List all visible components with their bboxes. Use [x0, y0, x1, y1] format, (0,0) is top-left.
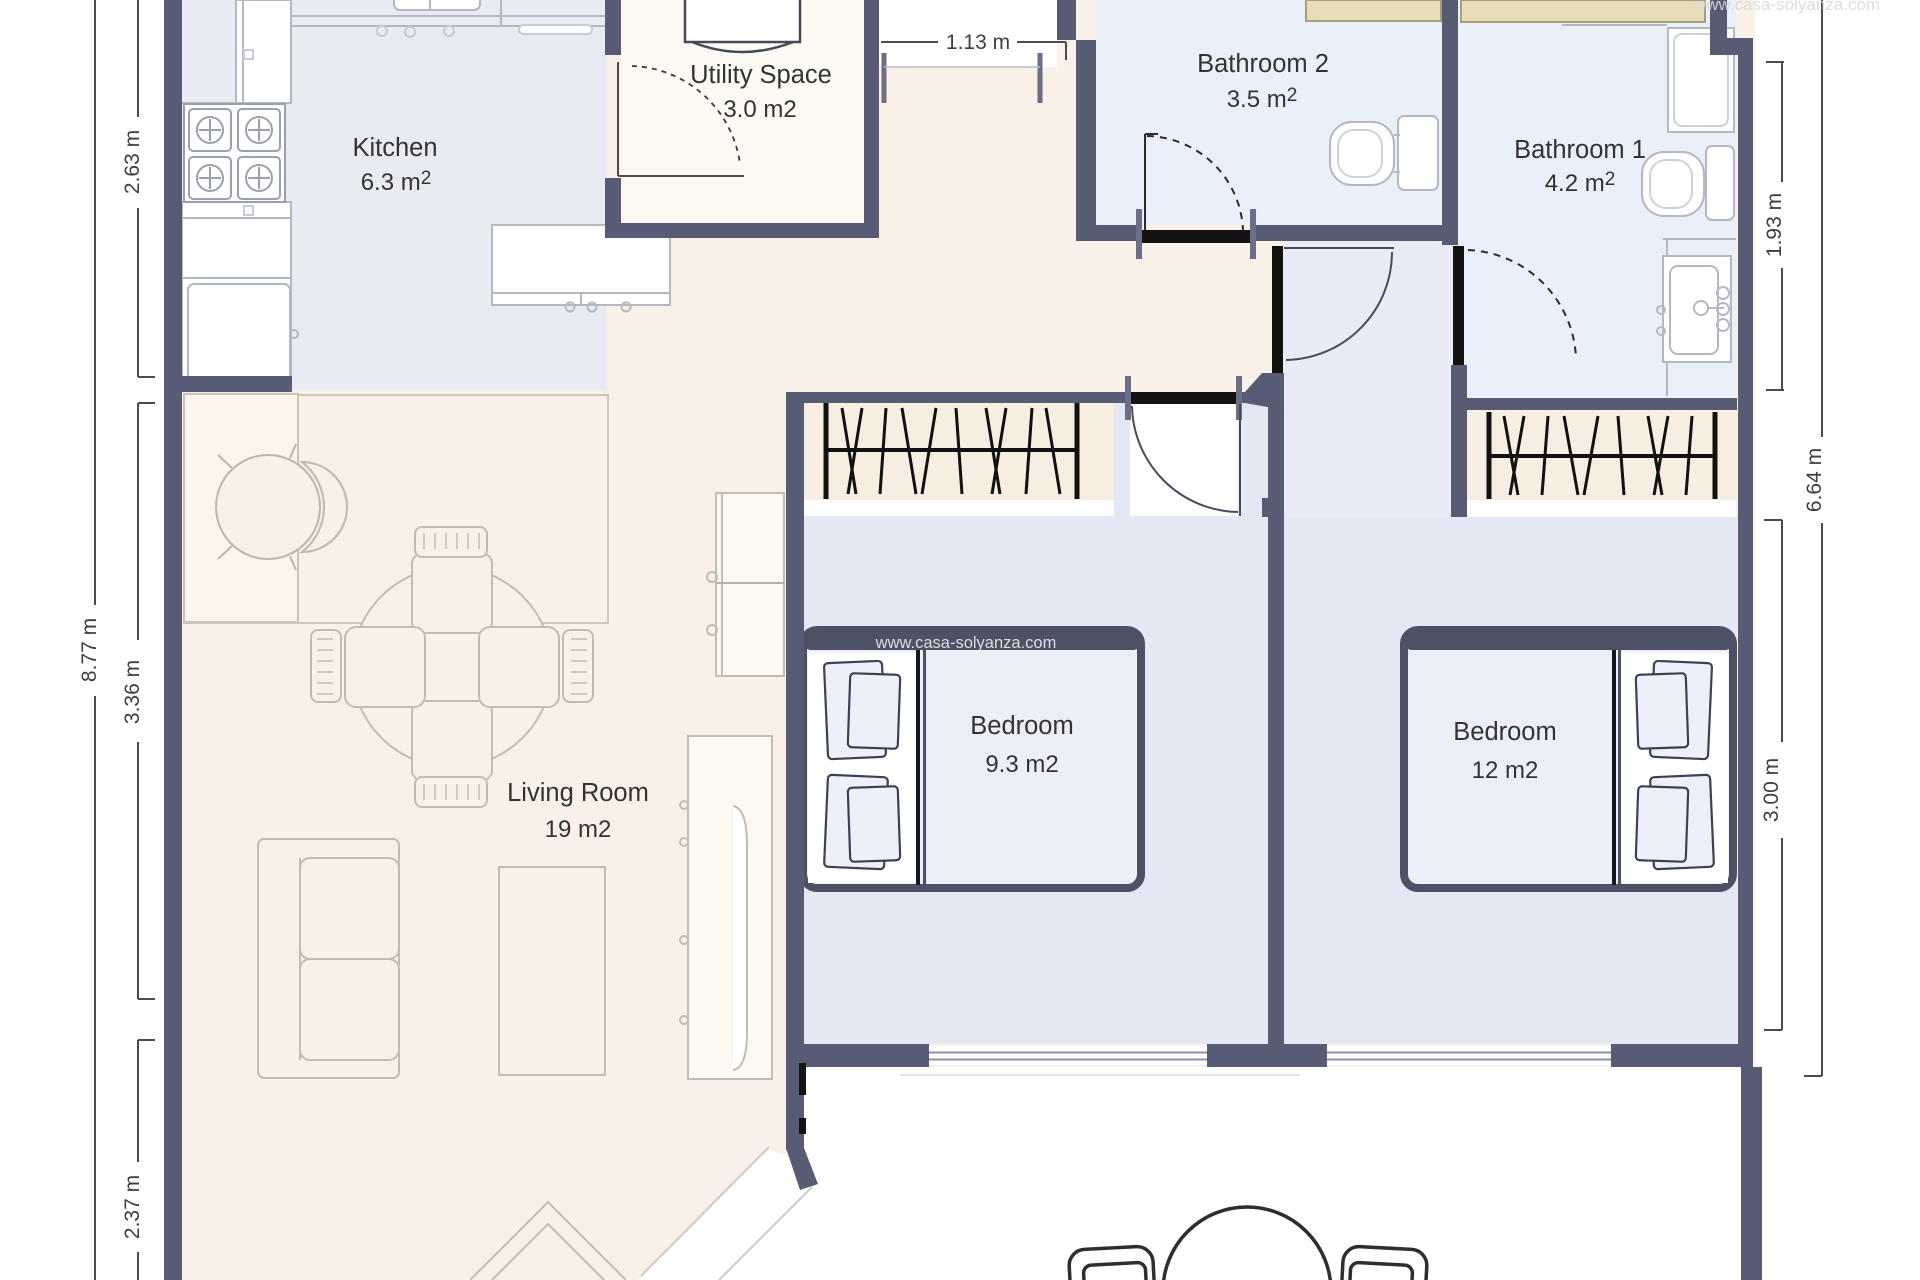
- svg-text:2.37 m: 2.37 m: [121, 1175, 144, 1239]
- svg-text:www.casa-solyanza.com: www.casa-solyanza.com: [1693, 0, 1880, 14]
- svg-text:6.3 m2: 6.3 m2: [361, 168, 432, 196]
- svg-text:www.casa-solyanza.com: www.casa-solyanza.com: [875, 634, 1057, 652]
- svg-text:Kitchen: Kitchen: [352, 134, 437, 162]
- svg-text:6.64 m: 6.64 m: [1803, 448, 1826, 512]
- svg-text:8.77 m: 8.77 m: [78, 618, 101, 682]
- svg-text:12 m2: 12 m2: [1472, 757, 1539, 784]
- svg-text:19 m2: 19 m2: [545, 816, 612, 843]
- svg-text:Bathroom 1: Bathroom 1: [1514, 136, 1646, 164]
- svg-text:3.00 m: 3.00 m: [1760, 758, 1783, 822]
- svg-text:2.63 m: 2.63 m: [121, 130, 144, 194]
- svg-text:3.36 m: 3.36 m: [121, 660, 144, 724]
- svg-text:3.5 m2: 3.5 m2: [1227, 85, 1298, 113]
- svg-text:Bedroom: Bedroom: [1453, 718, 1556, 746]
- svg-text:9.3 m2: 9.3 m2: [985, 751, 1058, 778]
- svg-text:Living Room: Living Room: [507, 779, 649, 807]
- svg-text:3.0 m2: 3.0 m2: [723, 96, 796, 123]
- svg-text:4.2 m2: 4.2 m2: [1545, 169, 1616, 197]
- svg-text:Bathroom 2: Bathroom 2: [1197, 50, 1329, 78]
- svg-text:1.13 m: 1.13 m: [946, 31, 1010, 54]
- svg-text:Utility Space: Utility Space: [690, 61, 832, 89]
- svg-text:1.93 m: 1.93 m: [1763, 193, 1786, 257]
- svg-text:Bedroom: Bedroom: [970, 712, 1073, 740]
